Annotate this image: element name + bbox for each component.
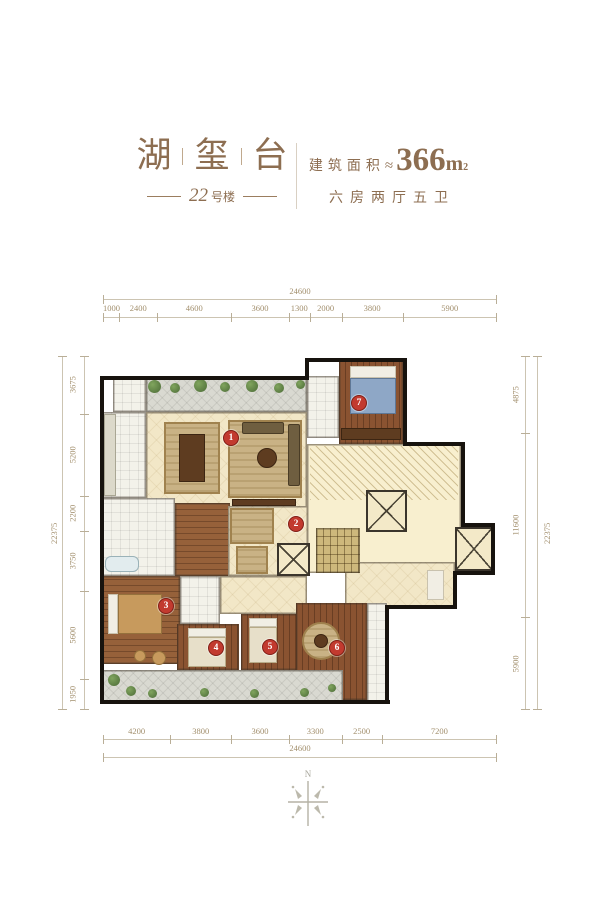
- dimension-tick: [521, 617, 530, 618]
- dimension-tick: [80, 356, 89, 357]
- compass-rose: N: [282, 768, 334, 828]
- room-bathroom-6: [367, 603, 387, 702]
- wall-segment: [388, 605, 457, 609]
- project-title-block: 湖 玺 台 22 号楼: [128, 136, 296, 216]
- room-marker-1: 1: [223, 430, 239, 446]
- dimension-tick: [342, 313, 343, 322]
- room-terrace-bottom: [102, 670, 343, 702]
- title-separator-bar: [241, 148, 242, 165]
- dimension-tick: [533, 356, 542, 357]
- bathtub: [105, 556, 139, 572]
- dimension-line: [525, 356, 526, 710]
- dimension-tick: [533, 709, 542, 710]
- title-char: 台: [253, 136, 288, 176]
- dimension-tick: [103, 753, 104, 762]
- dimension-value: 2000: [310, 303, 342, 313]
- room-elevator-1: [366, 490, 407, 532]
- wall-segment: [491, 523, 495, 575]
- approx-symbol: ≈: [385, 158, 393, 175]
- floor-plan: 1234567: [100, 358, 500, 708]
- wall-segment: [403, 358, 407, 446]
- dimension-tick: [382, 735, 383, 744]
- dimension-value: 1300: [289, 303, 310, 313]
- dimension-tick: [310, 313, 311, 322]
- plant: [126, 686, 136, 696]
- wall-segment: [453, 571, 457, 609]
- hall-rug: [230, 508, 274, 544]
- dimension-value: 3800: [170, 726, 231, 736]
- dimension-tick: [521, 709, 530, 710]
- header: 湖 玺 台 22 号楼 建筑面积 ≈ 366 m 2 六房两厅五卫: [128, 136, 480, 216]
- dimension-tick: [521, 356, 530, 357]
- area-unit: m: [446, 151, 464, 176]
- dimension-value: 3600: [231, 726, 289, 736]
- plant: [194, 379, 207, 392]
- dimension-value: 3800: [342, 303, 403, 313]
- title-char: 玺: [194, 136, 229, 176]
- dimension-line: [103, 739, 497, 740]
- dimension-tick: [521, 433, 530, 434]
- plant: [328, 684, 336, 692]
- room-master-bath: [307, 376, 339, 438]
- room-bathroom-mid: [180, 576, 220, 624]
- area-value: 366: [396, 145, 446, 175]
- dimension-ruler-bottom: 24600420038003600330025007200: [103, 724, 497, 770]
- entry-door: [427, 570, 444, 600]
- wall-segment: [305, 358, 309, 380]
- plant: [148, 380, 161, 393]
- room-utility-room: [113, 378, 146, 412]
- plant: [108, 674, 120, 686]
- dimension-value: 3675: [66, 356, 79, 414]
- plant: [170, 383, 180, 393]
- dimension-value: 2500: [342, 726, 382, 736]
- dimension-ruler-top: 2460010002400460036001300200038005900: [103, 286, 497, 332]
- dimension-line: [62, 356, 63, 710]
- subtitle-rule-right: [243, 196, 277, 197]
- dimension-value: 1950: [66, 679, 79, 710]
- dimension-tick: [496, 753, 497, 762]
- plant: [250, 689, 259, 698]
- room-elevator-3: [277, 543, 310, 576]
- dimension-value: 4200: [103, 726, 170, 736]
- wall-segment: [461, 523, 495, 527]
- plant: [220, 382, 230, 392]
- dimension-line: [103, 317, 497, 318]
- spec-block: 建筑面积 ≈ 366 m 2 六房两厅五卫: [297, 136, 480, 216]
- plant: [148, 689, 157, 698]
- wall-segment: [305, 358, 407, 362]
- tv-cabinet: [232, 499, 296, 506]
- dimension-tick: [119, 313, 120, 322]
- plant: [296, 380, 305, 389]
- dimension-tick: [403, 313, 404, 322]
- dimension-tick: [103, 313, 104, 322]
- title-separator-bar: [182, 148, 183, 165]
- dimension-line: [103, 757, 497, 758]
- wall-segment: [461, 442, 465, 527]
- bed-7-pillows: [350, 366, 396, 378]
- room-marker-4: 4: [208, 640, 224, 656]
- bed-4-pillows: [188, 628, 226, 637]
- dimension-tick: [80, 531, 89, 532]
- compass-icon: N: [282, 768, 334, 828]
- dimension-tick: [80, 591, 89, 592]
- dimension-line: [103, 299, 497, 300]
- dimension-value: 3750: [66, 531, 79, 590]
- project-title: 湖 玺 台: [133, 136, 290, 176]
- dimension-ruler-left: 22375367552002200375056001950: [48, 356, 92, 710]
- sofa-long: [288, 424, 300, 486]
- wall-segment: [100, 376, 104, 704]
- dimension-tick: [231, 313, 232, 322]
- pouf-2: [152, 651, 166, 665]
- runner-rug: [236, 546, 268, 574]
- plant: [300, 688, 309, 697]
- dimension-tick: [80, 414, 89, 415]
- sofa-side: [242, 422, 284, 434]
- wardrobe-7: [341, 428, 401, 440]
- dimension-value: 5900: [403, 303, 497, 313]
- dimension-value: 3300: [289, 726, 342, 736]
- kitchen-counter: [104, 414, 116, 496]
- building-number: 22: [189, 187, 208, 205]
- wall-segment: [385, 605, 389, 702]
- built-area: 建筑面积 ≈ 366 m 2: [309, 145, 468, 176]
- room-corridor: [175, 503, 230, 576]
- dimension-tick: [103, 735, 104, 744]
- plant: [246, 380, 258, 392]
- dining-table: [179, 434, 205, 482]
- bed-3-pillows: [108, 594, 118, 634]
- dimension-value: 5900: [509, 617, 522, 710]
- dimension-tick: [496, 735, 497, 744]
- dimension-line: [537, 356, 538, 710]
- dimension-tick: [80, 679, 89, 680]
- wall-segment: [403, 442, 465, 446]
- plant: [200, 688, 209, 697]
- wall-segment: [100, 700, 390, 704]
- building-suffix: 号楼: [211, 188, 235, 205]
- area-exponent: 2: [463, 162, 468, 173]
- dimension-value: 11600: [509, 433, 522, 617]
- room-stairwell: [316, 528, 360, 573]
- dimension-tick: [231, 735, 232, 744]
- room-inner-corridor: [220, 576, 307, 614]
- dimension-tick: [80, 496, 89, 497]
- dimension-tick: [170, 735, 171, 744]
- dimension-value: 24600: [103, 286, 497, 296]
- plant: [274, 383, 284, 393]
- room-marker-5: 5: [262, 639, 278, 655]
- dimension-value: 7200: [382, 726, 497, 736]
- coffee-table: [257, 448, 277, 468]
- dimension-tick: [342, 735, 343, 744]
- dimension-value: 24600: [103, 743, 497, 753]
- dimension-total: 22375: [48, 356, 60, 710]
- room-elevator-2: [455, 527, 493, 571]
- floorplan-brochure: 湖 玺 台 22 号楼 建筑面积 ≈ 366 m 2 六房两厅五卫: [0, 0, 600, 900]
- room-marker-3: 3: [158, 598, 174, 614]
- dimension-value: 5200: [66, 414, 79, 496]
- dimension-ruler-right: 223754875116005900: [508, 356, 552, 710]
- wall-segment: [100, 376, 309, 380]
- area-label: 建筑面积: [309, 155, 385, 175]
- dimension-value: 2400: [119, 303, 157, 313]
- subtitle-rule-left: [147, 196, 181, 197]
- building-subtitle: 22 号楼: [139, 187, 285, 205]
- dimension-value: 3600: [231, 303, 289, 313]
- dimension-tick: [289, 313, 290, 322]
- dimension-value: 4600: [157, 303, 231, 313]
- table-6: [314, 634, 328, 648]
- dimension-tick: [289, 735, 290, 744]
- dimension-value: 5600: [66, 591, 79, 680]
- wall-segment: [457, 571, 495, 575]
- dimension-tick: [496, 313, 497, 322]
- title-char: 湖: [136, 136, 171, 176]
- dimension-value: 4875: [509, 356, 522, 433]
- dimension-tick: [157, 313, 158, 322]
- dimension-line: [84, 356, 85, 710]
- dimension-total: 22375: [541, 356, 553, 710]
- room-marker-6: 6: [329, 640, 345, 656]
- compass-north-label: N: [305, 769, 312, 779]
- room-marker-2: 2: [288, 516, 304, 532]
- bed-5-pillows: [249, 618, 277, 627]
- room-marker-7: 7: [351, 395, 367, 411]
- dimension-value: 1000: [103, 303, 119, 313]
- bed-3: [118, 594, 162, 634]
- dimension-tick: [80, 709, 89, 710]
- dimension-value: 2200: [66, 496, 79, 531]
- pouf-1: [134, 650, 146, 662]
- room-layout-text: 六房两厅五卫: [322, 187, 455, 207]
